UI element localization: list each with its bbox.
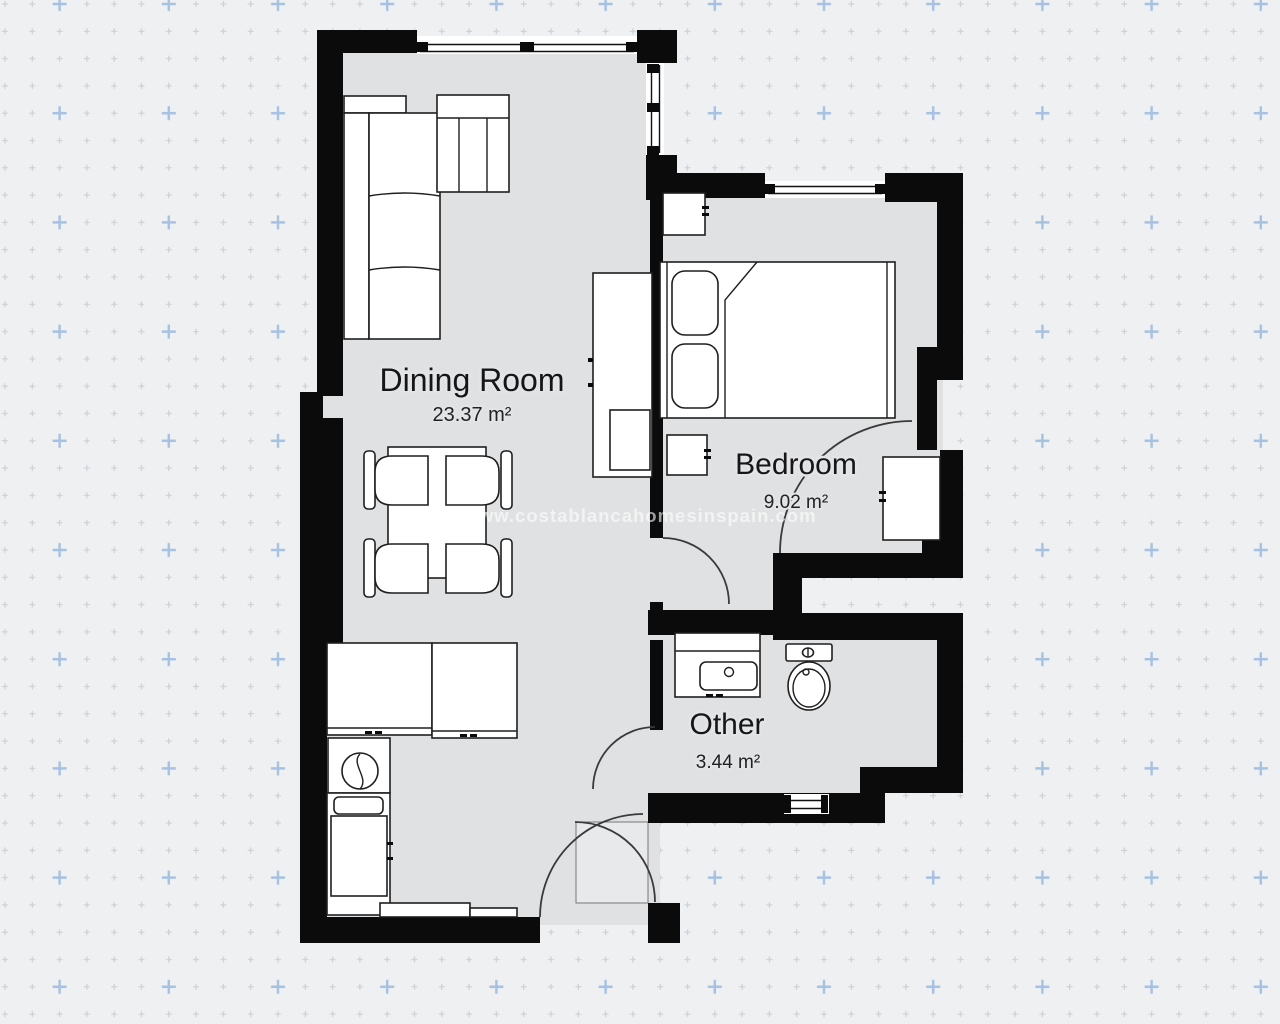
kitchen-counter [380,903,470,917]
tv-unit [588,273,652,477]
double-bed [660,262,895,418]
kitchen-cabinet [432,643,517,738]
window-bedroom-top [765,181,885,198]
nightstand [663,193,709,235]
dining-chair [364,539,428,597]
dining-room-label: Dining Room [380,362,565,398]
other-room-label: Other [689,708,764,741]
window-other-bottom [784,794,829,814]
bedroom-label: Bedroom [735,448,857,481]
nightstand [667,435,711,475]
dining-chair [446,539,512,597]
washing-machine [327,793,393,915]
window-dining-top [417,36,637,54]
entrance-door-leaf-area [576,822,648,903]
toilet [786,644,832,710]
floorplan-canvas: Dining Room 23.37 m² Bedroom 9.02 m² Oth… [0,0,1280,1024]
dining-chair [446,451,512,509]
window-dining-right [646,63,664,155]
floorplan-page: Dining Room 23.37 m² Bedroom 9.02 m² Oth… [0,0,1280,1024]
bathroom-vanity [675,633,760,697]
wardrobe [879,457,940,540]
kitchen-cabinet [327,643,432,735]
armchair [437,95,509,192]
pillow [672,344,718,408]
dining-chair [364,451,428,509]
kitchen-sink [328,738,390,793]
watermark-text: www.costablancahomesinspain.com [462,505,816,526]
pillow [672,271,718,335]
dining-room-area: 23.37 m² [433,404,512,426]
other-room-area: 3.44 m² [696,752,760,773]
kitchen-counter [470,908,517,917]
corner-sofa [344,96,440,339]
